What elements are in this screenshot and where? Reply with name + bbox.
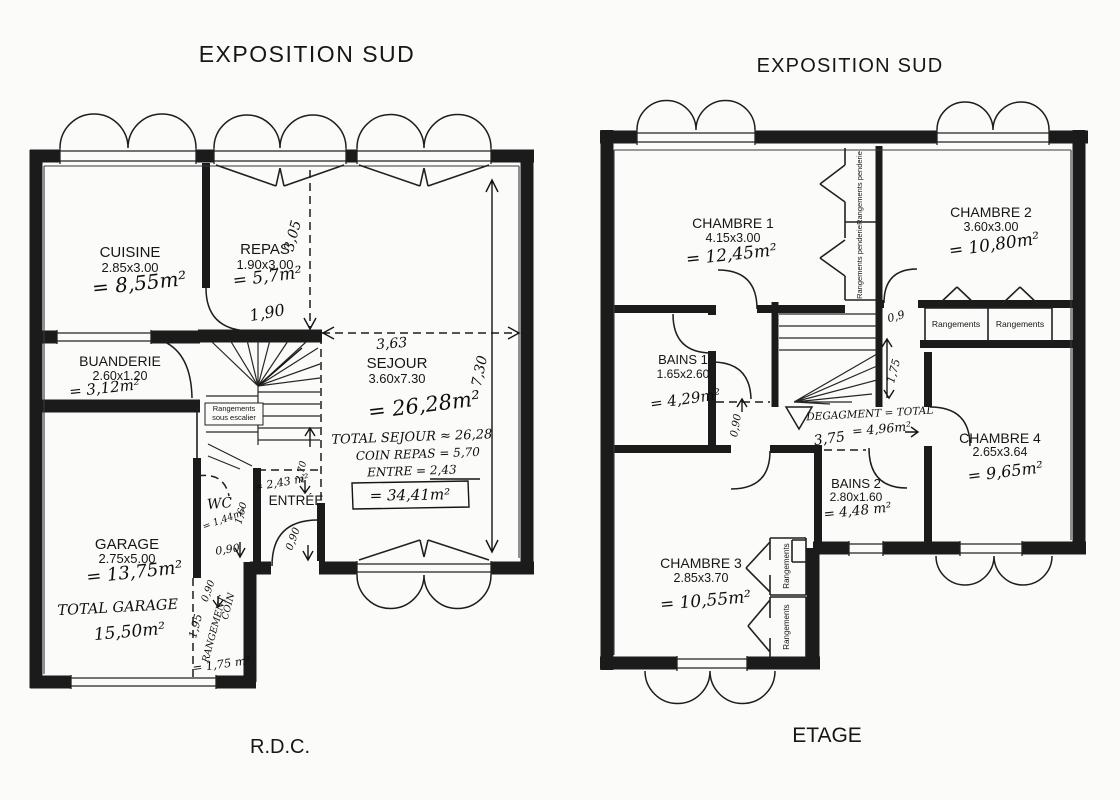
etage-degagement-line2: = 4,96m²: [851, 418, 911, 438]
rdc-dim-wc-width: 0,90: [214, 541, 240, 557]
etage-ch3-name: CHAMBRE 3: [660, 555, 742, 571]
rdc-buanderie-area: = 3,12m²: [68, 375, 140, 400]
rdc-sejour-area: = 26,28m²: [367, 386, 482, 424]
etage-dim-corridor-width: 0,9: [886, 308, 906, 325]
rdc-total-garage-label: TOTAL GARAGE: [57, 597, 179, 619]
rdc-plan: Rangements sous escalier CUISINE 2.85x3.…: [30, 114, 534, 689]
etage-degagement-line1: DEGAGMENT = TOTAL: [805, 405, 934, 424]
etage-ch3-area: = 10,55m²: [659, 587, 752, 615]
rdc-total-sejour-line3: ENTRE = 2,43: [366, 462, 457, 479]
etage-ch2-closet-1: Rangements: [932, 319, 980, 329]
etage-ch2-closet-2: Rangements: [996, 319, 1044, 329]
rdc-buanderie-name: BUANDERIE: [79, 353, 161, 369]
etage-ch3-closet-2: Rangements: [782, 604, 791, 649]
rdc-entree-name: ENTRÉE: [269, 493, 324, 508]
rdc-exposition-title: EXPOSITION SUD: [199, 41, 416, 67]
rdc-caption: R.D.C.: [250, 736, 310, 758]
rdc-stairs: Rangements sous escalier: [205, 340, 320, 469]
etage-dim-bains1-door: 0,90: [728, 413, 744, 438]
etage-ch4-name: CHAMBRE 4: [959, 430, 1041, 446]
etage-plan: CHAMBRE 1 4.15x3.00 CHAMBRE 2 3.60x3.00 …: [600, 101, 1088, 704]
rdc-stair-label-line1: Rangements: [213, 404, 256, 413]
rdc-dim-coin-width: 0,90: [200, 578, 218, 603]
rdc-dim-sejour-width: 3,63: [376, 335, 408, 353]
etage-ch1-name: CHAMBRE 1: [692, 215, 774, 231]
etage-penderie-label-1: Rangements penderie: [855, 151, 864, 225]
scanned-floorplan-page: Rangements sous escalier CUISINE 2.85x3.…: [0, 0, 1120, 800]
rdc-dim-wc-depth: 1,60: [233, 501, 250, 526]
etage-ch1-area: = 12,45m²: [685, 240, 778, 269]
rdc-total-garage-value: 15,50m²: [93, 619, 166, 645]
etage-bains1-dims: 1.65x2.60: [657, 367, 710, 381]
rdc-cuisine-name: CUISINE: [100, 244, 161, 261]
etage-caption: ETAGE: [792, 724, 862, 747]
etage-bains2-name: BAINS 2: [831, 476, 881, 491]
rdc-coin-label2: RANGEMENT: [200, 594, 229, 664]
rdc-wc-name: WC: [206, 495, 233, 513]
rdc-sejour-dims: 3.60x7.30: [368, 371, 425, 386]
etage-ch4-area: = 9,65m²: [967, 457, 1044, 485]
etage-ch4-dims: 2.65x3.64: [973, 445, 1028, 459]
rdc-sejour-name: SEJOUR: [367, 355, 428, 372]
rdc-dim-repas-depth: 3,05: [281, 219, 305, 253]
rdc-total-sejour-line2: COIN REPAS = 5,70: [356, 445, 481, 463]
etage-bains1-name: BAINS 1: [658, 352, 708, 367]
etage-ch3-dims: 2.85x3.70: [674, 571, 729, 585]
floor-plans-svg: Rangements sous escalier CUISINE 2.85x3.…: [0, 0, 1120, 800]
etage-ch3-closet-1: Rangements: [782, 543, 791, 588]
rdc-total-sejour-value: = 34,41m²: [370, 485, 451, 504]
etage-stair-treads: [779, 314, 877, 404]
rdc-dim-hall-width: 1,90: [248, 300, 286, 325]
etage-ch2-name: CHAMBRE 2: [950, 204, 1032, 220]
etage-penderie-label-2: Rangements penderie: [855, 225, 864, 299]
etage-degagement-length: 3,75: [813, 429, 846, 449]
rdc-dim-sejour-depth: 7,30: [469, 354, 491, 388]
rdc-stair-label-line2: sous escalier: [212, 413, 256, 422]
rdc-dim-coin-length: 1,95: [186, 613, 205, 640]
etage-exposition-title: EXPOSITION SUD: [757, 55, 944, 77]
